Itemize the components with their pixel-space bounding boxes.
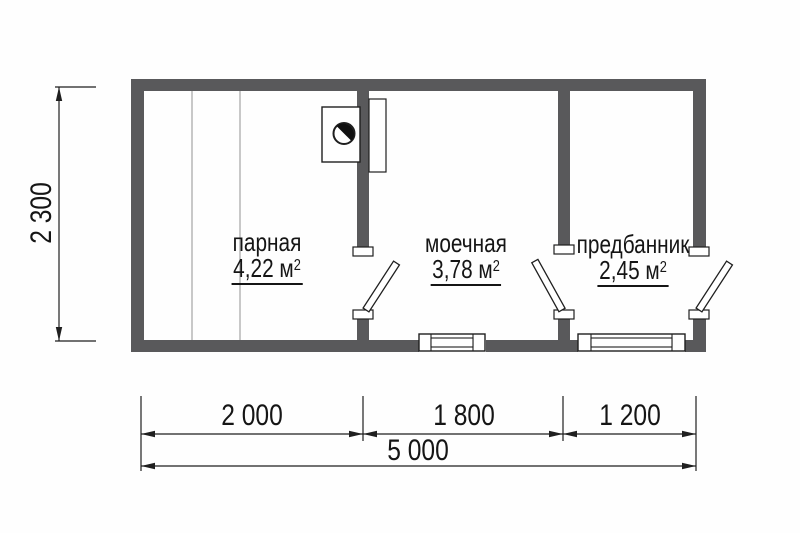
dimension-vertical (55, 87, 96, 341)
window-2 (578, 334, 685, 351)
dim-seg3-label: 1 200 (599, 399, 661, 433)
floor-plan: парная 4,22 м2 моечная 3,78 м2 предбанни… (0, 0, 800, 533)
door-entrance (696, 261, 732, 312)
dim-height-label: 2 300 (25, 182, 59, 244)
room-name-washing: моечная (425, 231, 507, 256)
dim-seg1-label: 2 000 (221, 399, 283, 433)
wall-bottom-seg1 (131, 340, 419, 352)
interior-wall-2-upper (558, 91, 570, 245)
room-name-steam: парная (232, 230, 303, 255)
door-steam-room (363, 261, 399, 312)
interior-wall-2-stub (558, 319, 570, 340)
interior-wall-1-stub (357, 319, 369, 340)
room-area-dressing: 2,45 м2 (577, 257, 690, 287)
wall-left (131, 79, 144, 352)
window-1 (419, 334, 485, 351)
stove-icon (322, 107, 360, 162)
room-label-dressing: предбанник 2,45 м2 (577, 232, 690, 287)
bench-lines (192, 91, 240, 340)
room-area-washing: 3,78 м2 (425, 256, 507, 286)
wall-right-upper (693, 79, 706, 247)
water-tank (369, 99, 386, 172)
room-label-steam: парная 4,22 м2 (232, 230, 303, 285)
room-label-washing: моечная 3,78 м2 (425, 231, 507, 286)
wall-top (131, 79, 706, 91)
dim-total-label: 5 000 (387, 434, 449, 468)
dim-seg2-label: 1 800 (433, 399, 495, 433)
wall-bottom-seg2 (486, 340, 578, 352)
door-dressing-room (532, 259, 565, 311)
wall-right-stub (693, 319, 706, 352)
room-area-steam: 4,22 м2 (232, 255, 303, 285)
room-name-dressing: предбанник (577, 232, 690, 257)
building-walls (131, 79, 706, 352)
